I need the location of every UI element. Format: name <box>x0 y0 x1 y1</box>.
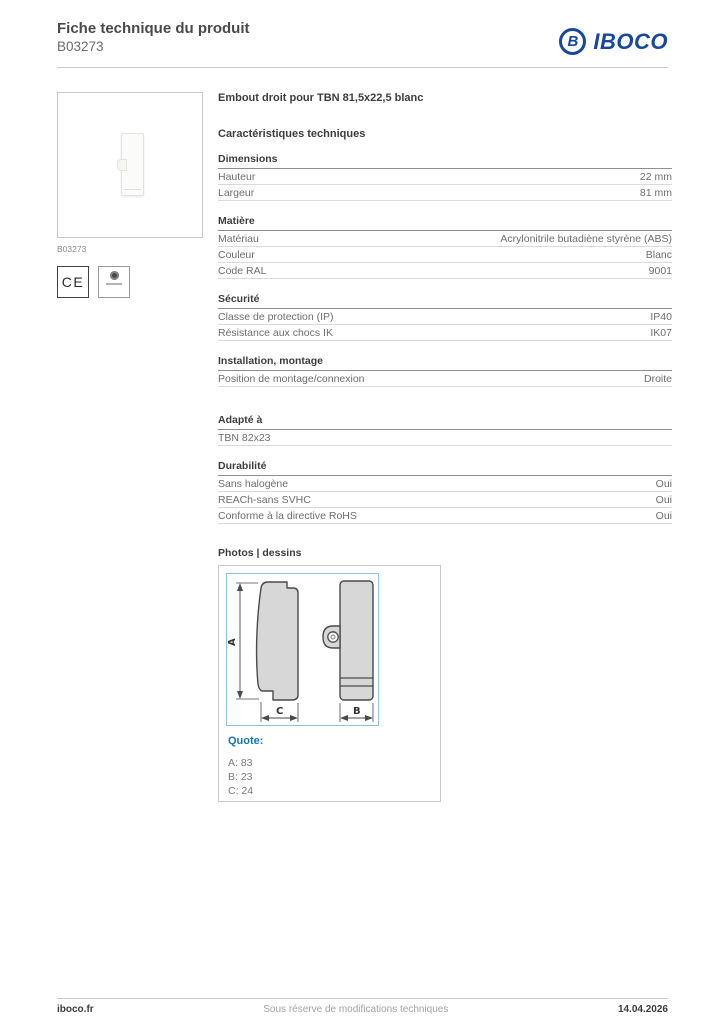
photo-caption: B03273 <box>57 244 203 254</box>
table-row: Largeur 81 mm <box>218 185 672 201</box>
quote-label: Quote: <box>228 735 433 747</box>
spec-group-matiere: Matière Matériau Acrylonitrile butadiène… <box>218 215 672 279</box>
brand-name: IBOCO <box>593 29 668 55</box>
brand-ring-icon: B <box>559 28 586 55</box>
seal-microtext <box>106 283 122 285</box>
row-value: Acrylonitrile butadiène styrène (ABS) <box>500 233 672 245</box>
row-label: Résistance aux chocs IK <box>218 327 333 339</box>
row-label: Couleur <box>218 249 255 261</box>
quote-value-a: A: 83 <box>228 756 433 770</box>
dimension-label-c: C <box>276 706 283 717</box>
row-label: Matériau <box>218 233 259 245</box>
table-row: Sans halogène Oui <box>218 476 672 492</box>
footer-notice: Sous réserve de modifications techniques <box>263 1004 448 1015</box>
quote-values: A: 83 B: 23 C: 24 <box>228 756 433 798</box>
row-label: REACh-sans SVHC <box>218 494 311 506</box>
row-value: Droite <box>644 373 672 385</box>
quote-value-c: C: 24 <box>228 784 433 798</box>
row-label: Hauteur <box>218 171 255 183</box>
arrowhead <box>290 715 298 721</box>
row-value: IK07 <box>650 327 672 339</box>
group-title: Durabilité <box>218 460 672 476</box>
arrowhead <box>365 715 373 721</box>
brand-letter: B <box>567 34 578 49</box>
row-value: Blanc <box>646 249 672 261</box>
front-shape <box>340 581 373 700</box>
row-label: Position de montage/connexion <box>218 373 365 385</box>
row-label: Conforme à la directive RoHS <box>218 510 357 522</box>
row-value: 81 mm <box>640 187 672 199</box>
row-value: Oui <box>656 494 672 506</box>
row-value: Oui <box>656 510 672 522</box>
profile-side-shape <box>257 582 298 700</box>
row-value: IP40 <box>650 311 672 323</box>
seal-circle-icon <box>110 271 119 280</box>
row-value: 9001 <box>649 265 672 277</box>
endcap-product-image <box>121 133 144 196</box>
arrowhead <box>261 715 269 721</box>
group-title: Adapté à <box>218 414 672 430</box>
table-row: Matériau Acrylonitrile butadiène styrène… <box>218 231 672 247</box>
row-label: Largeur <box>218 187 254 199</box>
table-row: REACh-sans SVHC Oui <box>218 492 672 508</box>
quote-value-b: B: 23 <box>228 770 433 784</box>
specs-panel: Embout droit pour TBN 81,5x22,5 blanc Ca… <box>218 92 672 802</box>
table-row: Classe de protection (IP) IP40 <box>218 309 672 325</box>
footer-website: iboco.fr <box>57 1004 94 1015</box>
row-value: Oui <box>656 478 672 490</box>
header-title-block: Fiche technique du produit B03273 <box>57 20 250 55</box>
table-row: Conforme à la directive RoHS Oui <box>218 508 672 524</box>
group-title: Matière <box>218 215 672 231</box>
group-title: Dimensions <box>218 153 672 169</box>
ce-mark-icon: CE <box>57 266 89 298</box>
dimension-label-b: B <box>353 706 361 717</box>
brand-logo: B IBOCO <box>559 28 668 55</box>
left-panel: B03273 CE <box>57 92 203 298</box>
product-photo <box>57 92 203 238</box>
footer-divider <box>57 998 668 999</box>
footer-date: 14.04.2026 <box>618 1004 668 1015</box>
table-row: Code RAL 9001 <box>218 263 672 279</box>
arrowhead <box>340 715 348 721</box>
spec-group-adapte: Adapté à TBN 82x23 <box>218 414 672 446</box>
arrowhead <box>237 583 243 591</box>
table-row: Hauteur 22 mm <box>218 169 672 185</box>
row-label: Code RAL <box>218 265 266 277</box>
spec-group-durabilite: Durabilité Sans halogène Oui REACh-sans … <box>218 460 672 524</box>
row-label: TBN 82x23 <box>218 432 271 444</box>
page-title: Fiche technique du produit <box>57 20 250 38</box>
header-divider <box>57 67 668 68</box>
row-label: Classe de protection (IP) <box>218 311 334 323</box>
technical-drawing: A C B <box>226 573 379 726</box>
dimension-label-a: A <box>227 638 238 646</box>
header: Fiche technique du produit B03273 B IBOC… <box>57 20 668 55</box>
table-row: Position de montage/connexion Droite <box>218 371 672 387</box>
arrowhead <box>237 691 243 699</box>
spec-group-installation: Installation, montage Position de montag… <box>218 355 672 387</box>
certification-row: CE <box>57 266 203 298</box>
product-name: Embout droit pour TBN 81,5x22,5 blanc <box>218 92 672 104</box>
spec-group-securite: Sécurité Classe de protection (IP) IP40 … <box>218 293 672 341</box>
footer: iboco.fr Sous réserve de modifications t… <box>57 1004 668 1015</box>
photos-heading: Photos | dessins <box>218 547 672 559</box>
group-title: Sécurité <box>218 293 672 309</box>
datasheet-page: Fiche technique du produit B03273 B IBOC… <box>0 0 724 1024</box>
spec-group-dimensions: Dimensions Hauteur 22 mm Largeur 81 mm <box>218 153 672 201</box>
tab-hole-outer <box>328 632 338 642</box>
product-code: B03273 <box>57 38 250 55</box>
row-label: Sans halogène <box>218 478 288 490</box>
row-value: 22 mm <box>640 171 672 183</box>
table-row: Couleur Blanc <box>218 247 672 263</box>
table-row: Résistance aux chocs IK IK07 <box>218 325 672 341</box>
certification-seal-icon <box>98 266 130 298</box>
technical-drawing-box: A C B Quote: <box>218 565 441 802</box>
dimension-drawing-svg: A C B <box>227 574 378 725</box>
table-row: TBN 82x23 <box>218 430 672 446</box>
group-title: Installation, montage <box>218 355 672 371</box>
specs-heading: Caractéristiques techniques <box>218 128 672 140</box>
